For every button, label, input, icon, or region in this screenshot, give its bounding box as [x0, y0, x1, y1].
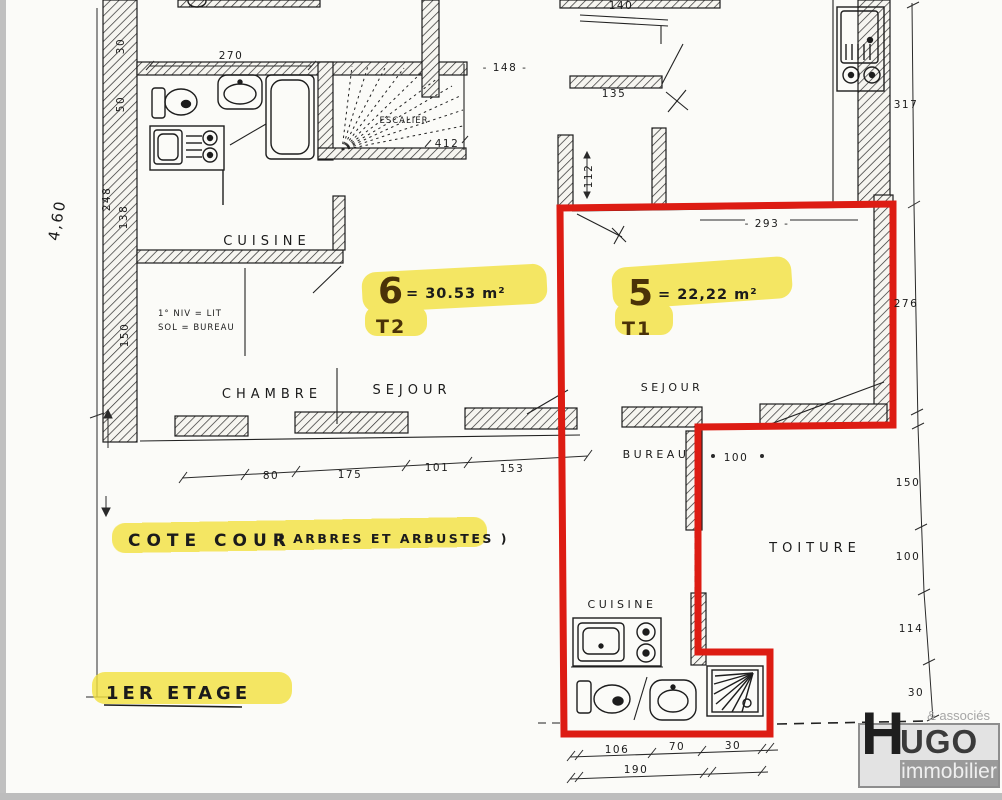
- dim-101: 101: [425, 462, 450, 474]
- dim-138-left: 138: [118, 205, 130, 230]
- toilet-bottom: [577, 681, 630, 713]
- dim-106: 106: [605, 744, 630, 756]
- dim-412: 412: [435, 138, 460, 150]
- dim-30-right: 30: [908, 687, 924, 699]
- dim-150-left: 150: [119, 323, 131, 348]
- dim-150-right: 150: [896, 477, 921, 489]
- dim-460-left: 4,60: [45, 198, 70, 242]
- label-sejour-left: SEJOUR: [372, 383, 451, 398]
- floor-plan-page: CUISINE CHAMBRE SEJOUR SEJOUR BUREAU ESC…: [0, 0, 1002, 800]
- washbasin-bottom: [650, 680, 696, 720]
- apt6-area: = 30.53 m²: [406, 286, 506, 302]
- label-chambre: CHAMBRE: [222, 387, 322, 402]
- etage-underline: [104, 705, 242, 707]
- bathtub: [266, 75, 314, 159]
- dim-114-right: 114: [899, 623, 924, 635]
- dim-140: 140: [609, 0, 634, 12]
- dim-175: 175: [338, 469, 363, 481]
- window-sill: [622, 407, 702, 427]
- note-mezzanine-1: 1° NIV = LIT: [158, 309, 222, 319]
- agency-logo: & associés H UGO immobilier: [850, 708, 1000, 788]
- washbasin-top: [218, 75, 262, 109]
- kitchen-unit-bottom: [573, 618, 661, 666]
- dim-70: 70: [669, 741, 685, 753]
- dim-153: 153: [500, 463, 525, 475]
- note-etage: 1ER ETAGE: [106, 683, 251, 704]
- apt5-number: 5: [628, 273, 653, 314]
- logo-immobilier: immobilier: [900, 760, 998, 786]
- dim-190: 190: [624, 764, 649, 776]
- label-bureau: BUREAU: [623, 448, 690, 461]
- apt5-type: T1: [622, 318, 652, 340]
- apt6-number: 6: [378, 271, 403, 312]
- label-cuisine-top: CUISINE: [223, 234, 310, 249]
- dim-80: 80: [263, 470, 279, 482]
- kitchen-unit-left: [150, 126, 224, 205]
- note-cote-cour-paren: ( ARBRES ET ARBUSTES ): [278, 531, 509, 546]
- apt5-area: = 22,22 m²: [658, 287, 758, 303]
- label-toiture: TOITURE: [768, 541, 861, 556]
- window-sill: [175, 416, 248, 436]
- wall-right-outer: [858, 0, 890, 205]
- dim-112: 112: [583, 164, 595, 189]
- dim-135: 135: [602, 88, 627, 100]
- note-cote-cour: COTE COUR: [128, 531, 292, 551]
- dim-270: 270: [219, 50, 244, 62]
- dimension-labels: 270 - 148 - 140 135 112 412 317 - 293 - …: [45, 0, 925, 776]
- logo-name-rest: UGO: [900, 723, 978, 760]
- dim-293: - 293 -: [745, 218, 790, 230]
- shower: [707, 666, 763, 716]
- partitions-and-doors: [140, 0, 928, 724]
- dim-100-right: 100: [896, 551, 921, 563]
- note-mezzanine-2: SOL = BUREAU: [158, 323, 235, 333]
- dim-148: - 148 -: [483, 62, 528, 74]
- floor-plan-drawing: CUISINE CHAMBRE SEJOUR SEJOUR BUREAU ESC…: [0, 0, 1002, 800]
- dim-276: 276: [894, 298, 919, 310]
- dim-30-bottom: 30: [725, 740, 741, 752]
- logo-initial: H: [861, 705, 904, 762]
- dim-30-left: 30: [115, 38, 127, 54]
- label-escalier: ESCALIER: [379, 116, 428, 126]
- label-sejour-right: SEJOUR: [641, 381, 704, 394]
- fixtures: [150, 0, 884, 720]
- apt6-type: T2: [376, 316, 406, 338]
- dim-100: 100: [724, 452, 749, 464]
- scan-edge-left: [0, 0, 6, 800]
- toilet-top: [152, 88, 197, 118]
- scan-edge-bottom: [0, 793, 1002, 800]
- label-cuisine-bottom: CUISINE: [588, 598, 657, 611]
- dimension-lines: [86, 2, 939, 783]
- logo-box: H UGO immobilier: [858, 723, 1000, 788]
- window-sill: [295, 412, 408, 433]
- dim-50-left: 50: [115, 96, 127, 112]
- dim-317: 317: [894, 99, 919, 111]
- dim-248-left: 248: [101, 187, 113, 212]
